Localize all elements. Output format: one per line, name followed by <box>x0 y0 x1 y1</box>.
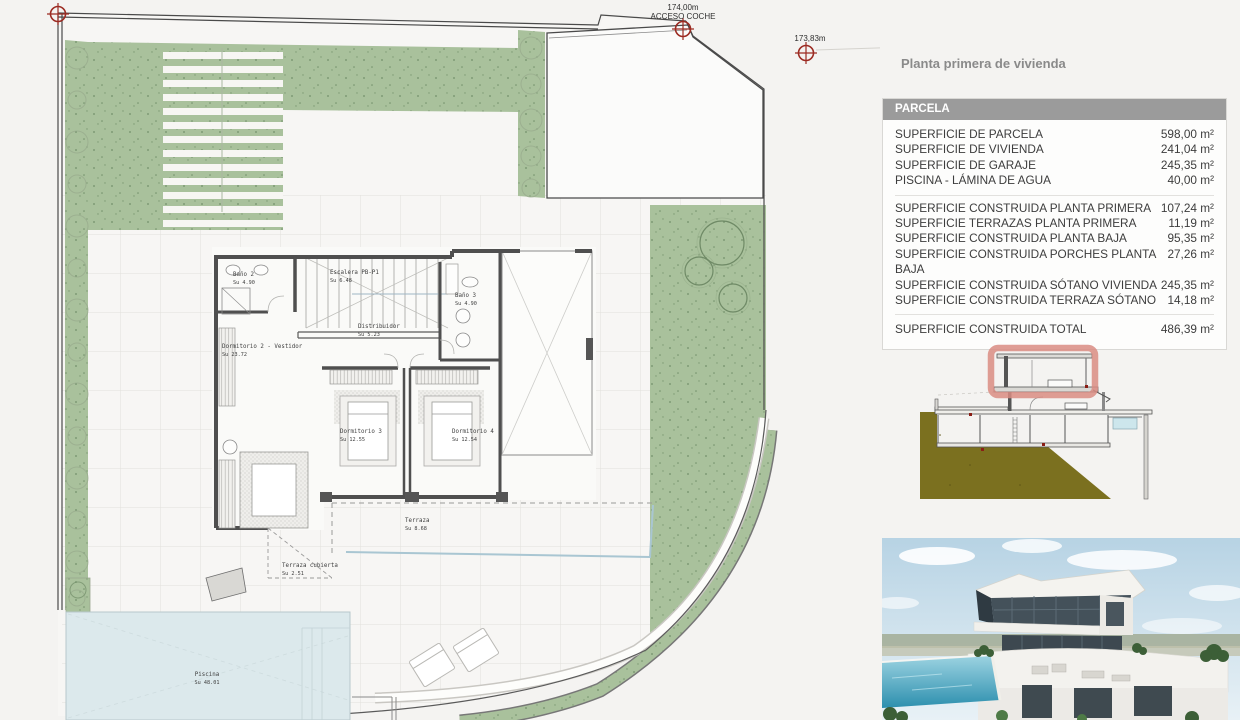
table-row: SUPERFICIE CONSTRUIDA PLANTA PRIMERA107,… <box>895 201 1214 216</box>
row-label: SUPERFICIE CONSTRUIDA PLANTA BAJA <box>895 231 1127 246</box>
svg-text:Su 2.51: Su 2.51 <box>282 571 304 577</box>
row-label: SUPERFICIE DE VIVIENDA <box>895 142 1044 157</box>
row-value: 598,00 m² <box>1161 127 1214 142</box>
room-label-distribuidor: Distribuidor <box>358 324 400 330</box>
plan-sheet: Piscina Su 48.01 <box>0 0 1240 720</box>
room-label-dormitorio4: Dormitorio 4 <box>452 429 494 435</box>
table-group-parcela: SUPERFICIE DE PARCELA598,00 m² SUPERFICI… <box>895 122 1214 196</box>
svg-text:Su 6.48: Su 6.48 <box>330 278 352 284</box>
render-pool <box>882 655 1000 708</box>
row-value: 40,00 m² <box>1167 173 1214 188</box>
row-label: SUPERFICIE CONSTRUIDA PLANTA PRIMERA <box>895 201 1151 216</box>
row-label: SUPERFICIE CONSTRUIDA SÓTANO VIVIENDA <box>895 278 1157 293</box>
room-label-bano3: Baño 3 <box>455 293 476 299</box>
render-3d <box>882 538 1240 720</box>
room-label-terraza-cubierta: Terraza cubierta <box>282 563 338 569</box>
row-label: SUPERFICIE TERRAZAS PLANTA PRIMERA <box>895 216 1136 231</box>
row-value: 107,24 m² <box>1161 201 1214 216</box>
table-row: SUPERFICIE CONSTRUIDA PORCHES PLANTA BAJ… <box>895 247 1214 278</box>
row-value: 95,35 m² <box>1167 231 1214 246</box>
table-row: SUPERFICIE CONSTRUIDA PLANTA BAJA95,35 m… <box>895 231 1214 246</box>
room-label-dormitorio3: Dormitorio 3 <box>340 429 382 435</box>
svg-text:Su 5.23: Su 5.23 <box>358 332 380 338</box>
room-area-piscina: Su 48.01 <box>195 680 220 686</box>
row-label: SUPERFICIE CONSTRUIDA PORCHES PLANTA BAJ… <box>895 247 1167 278</box>
table-row: SUPERFICIE DE PARCELA598,00 m² <box>895 127 1214 142</box>
table-group-construida: SUPERFICIE CONSTRUIDA PLANTA PRIMERA107,… <box>895 196 1214 316</box>
table-row: SUPERFICIE DE GARAJE245,35 m² <box>895 158 1214 173</box>
bed-dormitorio3 <box>334 390 400 466</box>
room-label-escalera: Escalera PB-P1 <box>330 270 379 276</box>
row-label: SUPERFICIE DE PARCELA <box>895 127 1043 142</box>
pergola <box>502 251 593 455</box>
row-label: SUPERFICIE DE GARAJE <box>895 158 1036 173</box>
table-row: SUPERFICIE DE VIVIENDA241,04 m² <box>895 142 1214 157</box>
section-earth <box>920 412 1111 499</box>
row-value: 11,19 m² <box>1168 216 1214 231</box>
table-row: SUPERFICIE CONSTRUIDA SÓTANO VIVIENDA245… <box>895 278 1214 293</box>
row-value: 14,18 m² <box>1167 293 1214 308</box>
svg-text:Su 23.72: Su 23.72 <box>222 352 247 358</box>
room-label-bano2: Baño 2 <box>233 272 254 278</box>
acceso-coche-label: ACCESO COCHE <box>651 12 716 21</box>
row-label: SUPERFICIE CONSTRUIDA TERRAZA SÓTANO <box>895 293 1156 308</box>
svg-text:Su 12.54: Su 12.54 <box>452 437 477 443</box>
svg-text:Su 8.68: Su 8.68 <box>405 526 427 532</box>
bed-dormitorio4 <box>418 390 484 466</box>
svg-text:Su 12.55: Su 12.55 <box>340 437 365 443</box>
row-value: 241,04 m² <box>1161 142 1214 157</box>
table-row: PISCINA - LÁMINA DE AGUA40,00 m² <box>895 173 1214 188</box>
row-value: 245,35 m² <box>1161 158 1214 173</box>
floor-plan-svg: Piscina Su 48.01 <box>0 0 880 720</box>
row-label: PISCINA - LÁMINA DE AGUA <box>895 173 1051 188</box>
table-row: SUPERFICIE CONSTRUIDA TERRAZA SÓTANO14,1… <box>895 293 1214 308</box>
table-header: PARCELA <box>883 99 1226 120</box>
garden-left-strip <box>65 40 88 612</box>
elevation-174: 174,00m <box>667 3 698 12</box>
row-value: 27,26 m² <box>1167 247 1214 278</box>
room-label-piscina: Piscina <box>195 672 219 678</box>
page-title: Planta primera de vivienda <box>901 56 1066 71</box>
section-drawing <box>880 335 1240 525</box>
table-row: SUPERFICIE TERRAZAS PLANTA PRIMERA11,19 … <box>895 216 1214 231</box>
room-label-terraza: Terraza <box>405 518 429 524</box>
surface-table: PARCELA SUPERFICIE DE PARCELA598,00 m² S… <box>882 98 1227 350</box>
elevation-173: 173,83m <box>794 34 825 43</box>
svg-text:Su 4.90: Su 4.90 <box>455 301 477 307</box>
row-value: 245,35 m² <box>1161 278 1214 293</box>
pool: Piscina Su 48.01 <box>66 612 396 720</box>
room-label-dormitorio2: Dormitorio 2 - Vestidor <box>222 344 303 350</box>
svg-text:Su 4.90: Su 4.90 <box>233 280 255 286</box>
